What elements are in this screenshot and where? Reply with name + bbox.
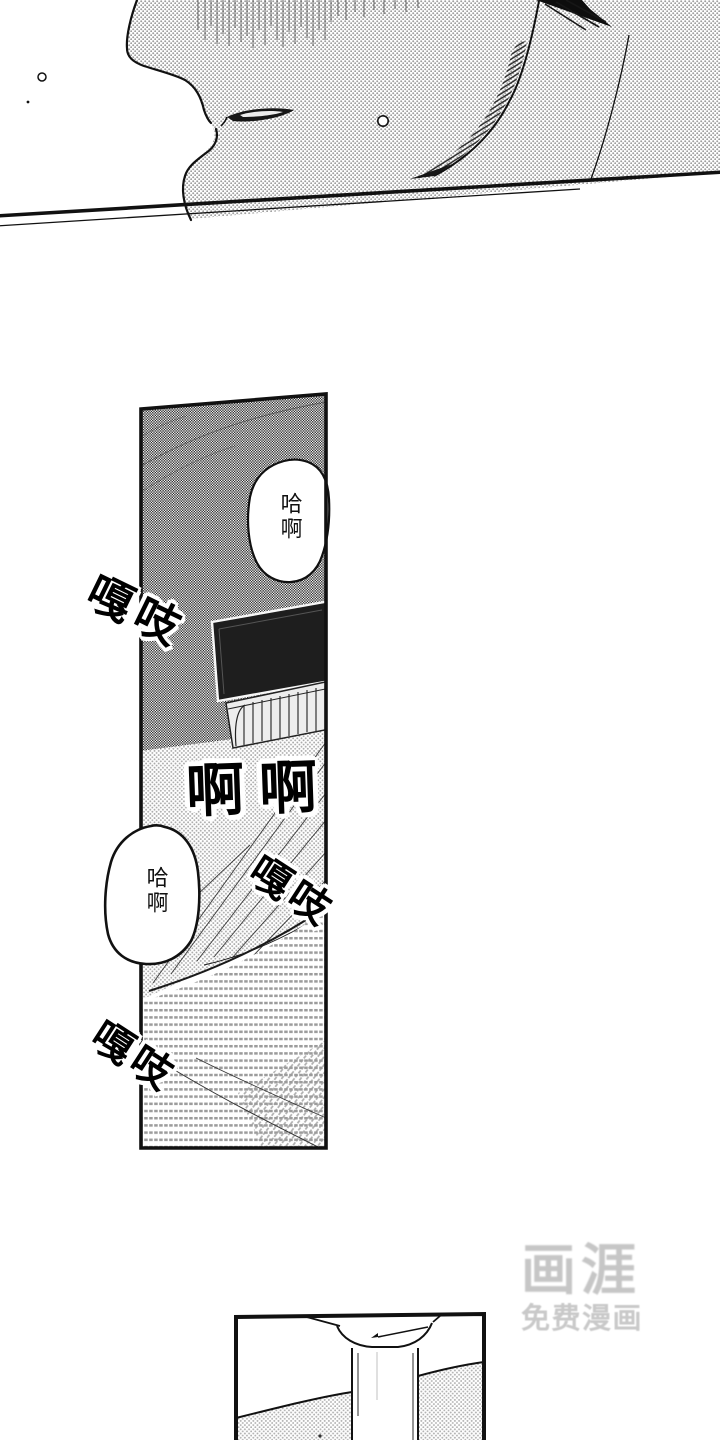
sfx-moan: 啊啊 (185, 739, 334, 828)
watermark-logo: 画涯 (521, 1243, 643, 1298)
bubble-1-text: 哈啊 (276, 492, 301, 542)
bubble-2-text: 哈啊 (142, 866, 167, 916)
watermark-tagline: 免费漫画 (521, 1304, 643, 1333)
manga-artwork (0, 0, 720, 1440)
watermark: 画涯 免费漫画 (521, 1243, 643, 1333)
panel-face-artwork (0, 0, 720, 226)
manga-page: 哈啊 哈啊 嘎吱 啊啊 嘎吱 嘎吱 画涯 免费漫画 (0, 0, 720, 1440)
panel-sink-artwork (236, 1314, 484, 1440)
